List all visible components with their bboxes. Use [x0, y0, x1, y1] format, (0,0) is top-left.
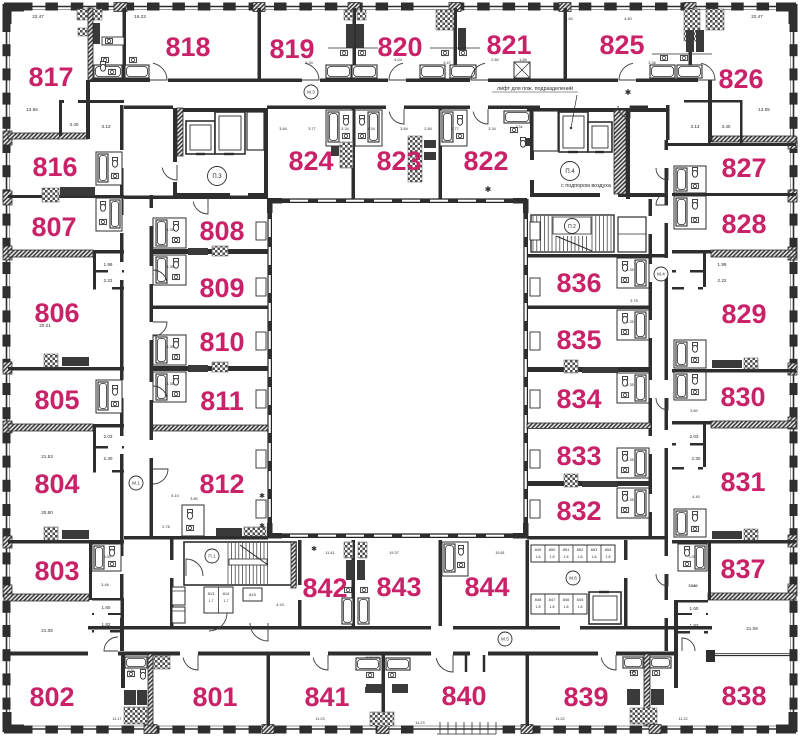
svg-text:836: 836: [556, 268, 601, 298]
svg-text:М.1: М.1: [132, 481, 140, 486]
svg-text:848: 848: [535, 597, 542, 602]
svg-text:850: 850: [549, 547, 556, 552]
svg-text:4.04: 4.04: [394, 58, 401, 62]
svg-text:854: 854: [605, 547, 612, 552]
svg-text:3.30: 3.30: [629, 670, 636, 674]
svg-text:3.36: 3.36: [648, 61, 655, 65]
svg-text:3.35: 3.35: [626, 498, 633, 502]
svg-text:3.46: 3.46: [101, 583, 108, 587]
svg-text:3.47: 3.47: [443, 61, 450, 65]
svg-text:829: 829: [721, 299, 766, 329]
svg-text:М.6: М.6: [569, 576, 577, 581]
svg-text:847: 847: [549, 597, 556, 602]
svg-text:844: 844: [464, 572, 509, 602]
svg-text:810: 810: [199, 327, 244, 357]
svg-text:3.40: 3.40: [722, 124, 731, 129]
svg-text:837: 837: [720, 554, 765, 584]
svg-text:1.8: 1.8: [536, 605, 541, 609]
svg-text:2.03: 2.03: [104, 434, 113, 439]
svg-text:П.3: П.3: [212, 174, 222, 180]
svg-text:821: 821: [486, 30, 531, 60]
svg-text:3.35: 3.35: [626, 320, 633, 324]
svg-text:3.77: 3.77: [308, 127, 315, 131]
svg-text:839: 839: [563, 682, 608, 712]
svg-text:815: 815: [249, 592, 256, 597]
svg-text:826: 826: [718, 64, 763, 94]
svg-text:809: 809: [199, 273, 244, 303]
svg-text:3.13: 3.13: [691, 124, 700, 129]
svg-text:832: 832: [556, 496, 601, 526]
svg-text:3.60: 3.60: [690, 409, 697, 413]
svg-text:21.08: 21.08: [746, 626, 758, 631]
svg-text:827: 827: [721, 153, 766, 183]
svg-text:849: 849: [535, 547, 542, 552]
svg-text:13.55: 13.55: [758, 107, 770, 112]
svg-text:3.35: 3.35: [166, 382, 173, 386]
svg-text:20.80: 20.80: [41, 510, 53, 515]
svg-text:11.41: 11.41: [325, 551, 334, 555]
svg-text:22.47: 22.47: [751, 14, 763, 19]
svg-text:3.34: 3.34: [488, 127, 495, 131]
svg-text:1.60: 1.60: [102, 605, 111, 610]
svg-text:П.4: П.4: [565, 169, 575, 175]
svg-text:819: 819: [269, 34, 314, 64]
svg-text:814: 814: [223, 591, 230, 596]
svg-text:4.60: 4.60: [624, 17, 631, 21]
svg-text:3.34: 3.34: [516, 125, 523, 129]
svg-text:11.23: 11.23: [315, 717, 324, 721]
svg-text:2.30: 2.30: [692, 456, 701, 461]
svg-text:804: 804: [34, 469, 79, 499]
svg-text:6.10: 6.10: [171, 494, 178, 498]
svg-text:803: 803: [34, 556, 79, 586]
svg-text:2.22: 2.22: [104, 278, 113, 283]
svg-text:М.3: М.3: [307, 90, 315, 95]
svg-text:1.8: 1.8: [592, 555, 597, 559]
svg-text:838: 838: [721, 681, 766, 711]
svg-text:808: 808: [199, 216, 244, 246]
svg-text:816: 816: [32, 152, 77, 182]
svg-text:833: 833: [556, 441, 601, 471]
svg-text:3.34: 3.34: [305, 61, 312, 65]
svg-text:1.60: 1.60: [690, 606, 699, 611]
svg-text:М.4: М.4: [657, 272, 665, 277]
svg-text:11.23: 11.23: [415, 721, 424, 725]
svg-text:22.47: 22.47: [32, 14, 44, 19]
svg-text:с подпором воздуха: с подпором воздуха: [561, 183, 611, 189]
svg-text:✱: ✱: [259, 492, 265, 500]
svg-text:2.80: 2.80: [491, 58, 498, 62]
svg-text:840: 840: [441, 681, 486, 711]
svg-text:13.55: 13.55: [26, 107, 38, 112]
svg-text:11.17: 11.17: [112, 717, 121, 721]
svg-text:1.89: 1.89: [519, 58, 526, 62]
svg-text:835: 835: [556, 325, 601, 355]
svg-text:✱: ✱: [311, 545, 317, 553]
svg-text:П.2: П.2: [568, 224, 576, 230]
svg-text:807: 807: [31, 212, 76, 242]
svg-text:11.22: 11.22: [555, 717, 564, 721]
svg-text:3.46: 3.46: [690, 584, 697, 588]
svg-text:1.8: 1.8: [564, 605, 569, 609]
svg-text:3.34: 3.34: [367, 127, 374, 131]
svg-text:2.22: 2.22: [718, 278, 727, 283]
svg-text:1.99: 1.99: [718, 262, 727, 267]
svg-text:825: 825: [599, 30, 644, 60]
svg-text:3.84: 3.84: [279, 127, 286, 131]
svg-text:1.60: 1.60: [565, 17, 572, 21]
svg-text:817: 817: [28, 62, 73, 92]
svg-text:✱: ✱: [625, 88, 632, 97]
svg-text:21.53: 21.53: [41, 454, 53, 459]
svg-text:3.35: 3.35: [104, 555, 111, 559]
svg-text:3.80: 3.80: [190, 497, 197, 501]
svg-text:824: 824: [288, 146, 333, 176]
svg-text:1.8: 1.8: [578, 605, 583, 609]
svg-text:2.30: 2.30: [104, 456, 113, 461]
svg-text:21.08: 21.08: [41, 628, 53, 633]
svg-text:16.23: 16.23: [134, 14, 146, 19]
svg-text:852: 852: [577, 547, 584, 552]
svg-text:3.35: 3.35: [689, 555, 696, 559]
svg-text:802: 802: [29, 682, 74, 712]
svg-text:3.35: 3.35: [166, 228, 173, 232]
svg-text:834: 834: [556, 384, 601, 414]
svg-text:3.34: 3.34: [341, 127, 348, 131]
svg-text:2.78: 2.78: [162, 525, 169, 529]
svg-text:812: 812: [199, 469, 244, 499]
svg-text:3.84: 3.84: [400, 127, 407, 131]
svg-text:822: 822: [463, 146, 508, 176]
svg-text:✱: ✱: [259, 522, 265, 530]
svg-text:✱: ✱: [485, 185, 492, 194]
svg-text:818: 818: [165, 32, 210, 62]
svg-text:19.81: 19.81: [495, 551, 505, 555]
svg-text:11.22: 11.22: [678, 717, 687, 721]
svg-text:3.35: 3.35: [166, 345, 173, 349]
svg-text:3.35: 3.35: [626, 458, 633, 462]
svg-text:1.8: 1.8: [536, 555, 541, 559]
svg-text:805: 805: [34, 385, 79, 415]
svg-text:4.40: 4.40: [692, 495, 699, 499]
svg-text:1.8: 1.8: [606, 555, 611, 559]
svg-text:3.77: 3.77: [451, 127, 458, 131]
svg-text:лифт для пож. подразделений: лифт для пож. подразделений: [497, 85, 573, 92]
svg-text:19.37: 19.37: [389, 551, 399, 555]
svg-text:3.13: 3.13: [102, 124, 111, 129]
svg-text:3.35: 3.35: [166, 265, 173, 269]
svg-text:20.21: 20.21: [39, 323, 51, 328]
svg-text:813: 813: [208, 591, 215, 596]
svg-text:3.35: 3.35: [626, 383, 633, 387]
svg-text:823: 823: [376, 146, 421, 176]
svg-text:М.5: М.5: [501, 637, 509, 642]
svg-text:851: 851: [563, 547, 570, 552]
svg-text:842: 842: [302, 573, 347, 603]
svg-text:1.7: 1.7: [209, 599, 214, 603]
svg-text:2.03: 2.03: [690, 434, 699, 439]
svg-text:3.35: 3.35: [626, 268, 633, 272]
svg-text:1.8: 1.8: [550, 555, 555, 559]
svg-text:811: 811: [200, 386, 244, 416]
svg-text:2.84: 2.84: [424, 127, 431, 131]
svg-text:841: 841: [304, 682, 349, 712]
svg-text:1.99: 1.99: [104, 262, 113, 267]
svg-text:3.40: 3.40: [70, 122, 79, 127]
svg-text:П.1: П.1: [208, 554, 216, 559]
svg-text:828: 828: [721, 209, 766, 239]
svg-text:1.8: 1.8: [550, 605, 555, 609]
svg-text:846: 846: [563, 597, 570, 602]
svg-text:801: 801: [192, 682, 237, 712]
svg-text:845: 845: [577, 597, 584, 602]
svg-text:1.8: 1.8: [578, 555, 583, 559]
svg-text:4.43: 4.43: [276, 603, 283, 607]
svg-text:853: 853: [591, 547, 598, 552]
svg-text:3.75: 3.75: [630, 299, 637, 303]
svg-text:1.7: 1.7: [224, 599, 229, 603]
svg-text:830: 830: [720, 382, 765, 412]
svg-text:831: 831: [720, 467, 765, 497]
svg-text:1.8: 1.8: [564, 555, 569, 559]
svg-text:843: 843: [376, 572, 421, 602]
